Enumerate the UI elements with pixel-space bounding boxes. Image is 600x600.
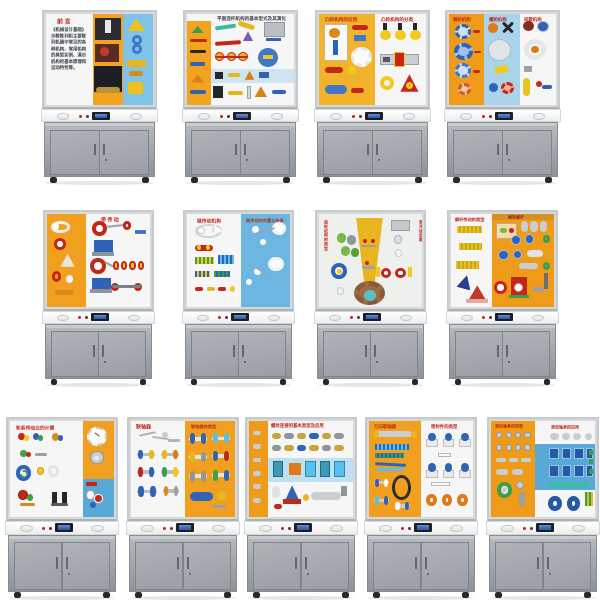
item-part — [201, 471, 206, 482]
speaker-grille-icon — [461, 315, 473, 322]
panel-title: 联轴器 — [136, 424, 151, 431]
wheel-icon — [51, 379, 58, 385]
board-item-rect — [574, 448, 583, 460]
control-button — [85, 316, 88, 319]
keyhole — [376, 361, 378, 363]
control-button — [489, 115, 492, 118]
control-button — [359, 115, 362, 118]
door-handle — [102, 345, 104, 356]
wheel-icon — [224, 592, 231, 598]
cabinet-door-left — [495, 542, 543, 590]
product-photo: 前 言《机械设计基础》示教陈列柜主要陈列机器中常见的各种机构、常用机构的典型实例… — [0, 0, 600, 600]
board-item-ring — [543, 262, 550, 269]
display-board: 万向联轴器密封件的类型 — [369, 421, 473, 517]
item-part — [224, 451, 229, 462]
board-item-circle — [341, 246, 350, 255]
display-case: 万向联轴器密封件的类型 — [365, 417, 477, 521]
item-part — [190, 452, 195, 463]
board-item-cap — [272, 90, 287, 95]
board-item-circle — [94, 494, 102, 503]
caster-wheels — [127, 591, 239, 598]
board-item-cap — [527, 250, 542, 256]
wheel-icon — [544, 379, 551, 385]
display-case: 蜗杆传动的类型蜗轮蜗杆 — [447, 210, 558, 311]
board-item-ring — [52, 271, 61, 281]
board-item-rect — [466, 299, 488, 303]
board-item-cap — [512, 469, 523, 475]
item-part — [445, 463, 453, 471]
board-item-gear — [20, 470, 27, 478]
display-cabinet-rolling-bearings: 滚动轴承的类型滚动轴承的应用 — [487, 417, 599, 598]
display-case: 螺纹连接的基本类型及应用 — [245, 417, 357, 521]
item-part — [461, 463, 469, 471]
display-case: 凸轮机构的应用凸轮机构的分类 — [315, 10, 430, 109]
door-handle — [305, 557, 307, 569]
lcd-screen-glass — [94, 315, 106, 319]
board-item-rect — [413, 23, 417, 29]
item-part — [173, 450, 178, 460]
board-item-circle — [217, 491, 225, 500]
cabinet-door-left — [323, 331, 371, 377]
board-item-circle — [246, 279, 252, 285]
lcd-screen — [363, 313, 381, 321]
wheel-icon — [191, 379, 198, 385]
item-part — [375, 496, 379, 505]
board-item-ring — [129, 261, 135, 269]
item-part — [138, 467, 143, 477]
keyhole — [549, 573, 551, 575]
board-item-cap — [519, 263, 538, 269]
control-button — [227, 115, 230, 118]
lcd-screen-glass — [368, 114, 381, 118]
board-item-cap — [190, 50, 206, 54]
panel-title: 渐开线齿廓 — [417, 220, 422, 242]
display-board: 凸轮机构的应用凸轮机构的分类 — [319, 14, 426, 105]
board-item-circle — [411, 431, 417, 439]
board-item-rect — [549, 448, 558, 460]
board-item-cap — [253, 471, 261, 476]
power-indicator-light — [218, 316, 221, 319]
display-cabinet-worm-drives: 蜗杆传动的类型蜗轮蜗杆 — [447, 210, 558, 385]
cabinet-door-left — [191, 130, 241, 176]
board-item-rect — [105, 20, 111, 33]
item-part — [190, 433, 195, 444]
board-item-circle — [337, 287, 344, 294]
wheel-icon — [191, 177, 198, 183]
board-item-cap — [96, 87, 120, 92]
speaker-grille-icon — [329, 315, 341, 322]
display-case: 棘轮机构槽轮机构间歇机构 — [445, 10, 560, 109]
board-item-stripes — [195, 271, 209, 277]
panel-title: 滚动轴承的类型 — [495, 424, 523, 430]
board-item-rect — [213, 86, 224, 98]
board-item-cap — [195, 287, 203, 291]
cabinet-body — [185, 122, 295, 176]
wheel-icon — [373, 592, 380, 598]
speaker-grille-icon — [198, 113, 210, 120]
board-item-gear — [87, 427, 107, 446]
item-part — [162, 467, 167, 477]
display-board: 联轴器联轴器的类型 — [131, 421, 235, 517]
item-part — [138, 486, 144, 497]
board-item-circle — [525, 234, 534, 243]
caster-wheels — [245, 591, 357, 598]
control-panel — [446, 311, 559, 324]
board-item-circle — [351, 248, 359, 256]
control-panel — [444, 109, 561, 122]
speaker-grille-icon — [330, 113, 342, 120]
power-indicator-light — [42, 527, 45, 530]
door-handle — [374, 345, 376, 356]
panel-title: 前 言 — [57, 18, 71, 27]
cabinet-door-left — [253, 542, 301, 590]
board-item-coupl — [162, 486, 180, 496]
board-item-ring — [395, 268, 405, 278]
board-item-cap — [550, 433, 558, 441]
display-board: 链传动机构链传动的布置与张紧 — [187, 214, 290, 307]
board-item-circle — [371, 239, 375, 243]
board-item-circle — [197, 227, 204, 234]
control-button — [49, 527, 52, 530]
cabinet-door-right — [62, 542, 110, 590]
board-item-cap — [216, 56, 248, 58]
door-handle — [537, 557, 539, 569]
board-item-mount — [426, 463, 437, 477]
panel-title: 滚动轴承的应用 — [551, 425, 579, 431]
board-item-cap — [213, 505, 225, 509]
board-item-cap — [542, 85, 552, 89]
board-item-cap — [297, 433, 306, 439]
display-cabinet-cam-mechanisms: 凸轮机构的应用凸轮机构的分类 — [315, 10, 430, 183]
cabinet-door-right — [372, 130, 422, 176]
item-part — [213, 451, 218, 462]
display-board: 蜗杆传动的类型蜗轮蜗杆 — [451, 214, 554, 307]
cabinet-door-right — [99, 130, 149, 176]
board-item-gear — [454, 43, 472, 59]
panel-title: 凸轮机构的应用 — [325, 17, 357, 24]
display-case: 链传动机构链传动的布置与张紧 — [183, 210, 294, 311]
board-item-coupl — [160, 467, 180, 477]
board-item-rect — [544, 273, 548, 289]
speaker-grille-icon — [268, 315, 280, 322]
panel-title: 轮系传动比的计算 — [16, 425, 54, 432]
board-item-stripes — [195, 257, 214, 264]
board-item-cap — [530, 221, 537, 231]
speaker-grille-icon — [57, 113, 69, 120]
door-handle — [506, 144, 508, 155]
door-handle — [94, 144, 96, 155]
board-item-cap — [168, 439, 179, 441]
keyhole — [307, 573, 309, 575]
board-item-rect — [333, 40, 338, 56]
caster-wheels — [42, 176, 157, 183]
lcd-screen-glass — [95, 114, 108, 118]
board-item-cap — [509, 458, 518, 463]
item-part — [428, 433, 436, 441]
display-case: 轮系传动比的计算 — [6, 417, 118, 521]
board-item-rect — [341, 486, 347, 496]
board-item-circle — [489, 83, 499, 92]
lcd-screen-glass — [498, 315, 510, 319]
keyhole — [104, 361, 106, 363]
board-item-cap — [297, 445, 306, 451]
power-indicator-light — [350, 316, 353, 319]
display-cabinet-planar-linkages: 平面连杆机构的基本型式及其演化 — [183, 10, 298, 183]
board-item-rect — [394, 52, 405, 68]
display-cabinet-gear-mechanisms: 齿轮机构的类型渐开线齿廓 — [315, 210, 426, 385]
board-item-gear — [455, 24, 471, 39]
item-part — [201, 433, 206, 444]
board-item-mount — [443, 433, 454, 447]
door-handle — [497, 144, 499, 155]
control-panel — [42, 311, 155, 324]
board-item-cap — [272, 445, 281, 451]
power-indicator-light — [352, 115, 355, 118]
display-cabinet-chain-drives: 链传动机构链传动的布置与张紧 — [183, 210, 294, 385]
board-item-rect — [128, 82, 143, 94]
item-part — [201, 452, 206, 463]
door-handle — [497, 345, 499, 356]
preface-body: 《机械设计基础》示教陈列柜主要陈列机器中常见的各种机构、常用机构的典型实例、演示… — [51, 27, 90, 72]
board-item-cap — [376, 431, 411, 438]
cabinet-door-right — [301, 542, 349, 590]
board-item-stripes — [375, 453, 404, 459]
control-button — [357, 316, 360, 319]
cabinet-door-right — [421, 542, 469, 590]
board-item-cap — [473, 30, 480, 33]
board-item-cap — [521, 458, 530, 463]
caster-wheels — [445, 176, 560, 183]
keyhole — [427, 573, 429, 575]
item-part — [224, 470, 229, 481]
board-item-cap — [362, 266, 374, 269]
speaker-grille-icon — [130, 113, 142, 120]
cabinet-body — [247, 535, 355, 592]
board-item-cap — [190, 492, 213, 501]
keyhole — [508, 361, 510, 363]
board-item-rect — [376, 267, 381, 277]
lcd-screen — [233, 112, 251, 120]
keyhole — [244, 361, 246, 363]
board-item-cap — [325, 67, 342, 72]
item-part — [405, 502, 409, 511]
lcd-screen-glass — [498, 114, 511, 118]
lcd-screen — [414, 523, 432, 532]
board-item-stripes — [457, 226, 482, 233]
board-item-ring — [494, 281, 506, 294]
board-item-cap — [190, 62, 205, 66]
wheel-icon — [50, 177, 57, 183]
cabinet-body — [44, 122, 154, 176]
cabinet-body — [489, 535, 597, 592]
board-item-cap — [129, 71, 143, 76]
speaker-grille-icon — [91, 525, 103, 532]
wheel-icon — [135, 592, 142, 598]
wheel-icon — [342, 592, 349, 598]
board-item-cap — [334, 445, 343, 451]
speaker-grille-icon — [460, 113, 472, 120]
board-item-mount — [426, 433, 437, 447]
lcd-screen — [55, 523, 73, 532]
speaker-grille-icon — [400, 315, 412, 322]
item-part — [224, 433, 229, 443]
speaker-grille-icon — [403, 113, 415, 120]
lcd-screen — [365, 112, 383, 120]
board-item-circle — [501, 487, 506, 493]
display-cabinet-universal-joints-seals: 万向联轴器密封件的类型 — [365, 417, 477, 598]
power-indicator-light — [78, 316, 81, 319]
speaker-grille-icon — [379, 525, 391, 532]
control-panel — [486, 521, 600, 535]
cabinet-body — [8, 535, 116, 592]
cabinet-door-left — [51, 331, 99, 377]
speaker-grille-icon — [128, 315, 140, 322]
display-case: 平面连杆机构的基本型式及其演化 — [183, 10, 298, 109]
door-handle — [242, 345, 244, 356]
lcd-screen-glass — [236, 114, 249, 118]
board-item-cap — [309, 445, 318, 451]
board-item-rect — [354, 35, 366, 40]
board-item-rect — [86, 482, 97, 487]
wheel-icon — [415, 177, 422, 183]
board-item-cap — [272, 486, 280, 498]
speaker-grille-icon — [57, 315, 69, 322]
board-item-cap — [519, 492, 525, 505]
board-item-circle — [37, 467, 44, 475]
display-board: 平面连杆机构的基本型式及其演化 — [187, 14, 294, 105]
power-indicator-light — [523, 527, 526, 530]
control-button — [489, 316, 492, 319]
board-item-cap — [322, 433, 331, 439]
lcd-screen-glass — [58, 525, 70, 530]
display-board: 滚动轴承的类型滚动轴承的应用 — [491, 421, 595, 517]
control-panel — [182, 311, 295, 324]
board-item-ring — [406, 82, 413, 89]
lcd-screen-glass — [417, 525, 429, 530]
board-item-ring — [138, 261, 144, 269]
board-item-rect — [90, 289, 112, 293]
board-item-coupl — [136, 486, 158, 497]
board-item-circle — [537, 21, 549, 32]
caster-wheels — [183, 176, 298, 183]
cabinet-door-left — [455, 331, 503, 377]
speaker-grille-icon — [141, 525, 153, 532]
control-button — [170, 527, 173, 530]
wheel-icon — [103, 592, 110, 598]
board-item-circle — [488, 39, 512, 61]
board-item-rect — [562, 448, 571, 460]
board-item-circle — [500, 228, 506, 234]
board-item-cap — [112, 285, 141, 287]
control-button — [530, 527, 533, 530]
door-handle — [365, 345, 367, 356]
board-item-rect — [549, 482, 589, 488]
board-item-coupl — [373, 479, 390, 488]
board-item-circle — [524, 444, 530, 451]
wheel-icon — [462, 592, 469, 598]
board-item-stripes — [218, 255, 234, 264]
board-item-rect — [92, 252, 114, 256]
caster-wheels — [447, 378, 558, 385]
lcd-screen — [231, 313, 249, 321]
keyhole — [105, 159, 107, 161]
wheel-icon — [323, 379, 330, 385]
board-item-ring — [426, 494, 436, 506]
board-item-rect — [283, 499, 301, 504]
power-indicator-light — [163, 527, 166, 530]
board-item-cap — [207, 287, 215, 291]
board-item-rect — [266, 38, 281, 42]
keyhole — [508, 159, 510, 161]
power-indicator-light — [220, 115, 223, 118]
board-item-cap — [284, 445, 293, 451]
cabinet-door-left — [50, 130, 100, 176]
caster-wheels — [43, 378, 154, 385]
item-part — [428, 463, 436, 471]
power-indicator-light — [281, 527, 284, 530]
board-item-circle — [329, 28, 341, 38]
display-board: 螺纹连接的基本类型及应用 — [249, 421, 353, 517]
item-part — [384, 496, 388, 505]
door-handle — [367, 144, 369, 155]
board-item-rect — [264, 22, 285, 37]
board-item-ring — [392, 475, 411, 500]
cabinet-door-right — [370, 331, 418, 377]
board-item-rect — [127, 60, 145, 67]
display-case: 联轴器联轴器的类型 — [127, 417, 239, 521]
board-item-coupl — [188, 433, 208, 444]
board-item-stripes — [375, 444, 408, 450]
display-board: 前 言《机械设计基础》示教陈列柜主要陈列机器中常见的各种机构、常用机构的典型实例… — [46, 14, 153, 105]
wheel-icon — [455, 379, 462, 385]
item-part — [162, 450, 167, 460]
board-item-coupl — [373, 496, 390, 505]
board-item-ring — [121, 261, 127, 269]
board-item-cap — [272, 433, 281, 439]
board-item-rect — [305, 461, 315, 476]
door-handle — [66, 557, 68, 569]
board-item-cap — [228, 73, 241, 77]
display-cabinet-intermittent-mechanisms: 棘轮机构槽轮机构间歇机构 — [445, 10, 560, 183]
board-item-coupl — [211, 470, 231, 481]
control-panel — [41, 109, 158, 122]
cabinet-door-left — [135, 542, 183, 590]
cabinet-body — [367, 535, 475, 592]
board-item-circle — [395, 249, 402, 256]
board-item-coupl — [394, 502, 411, 511]
board-item-coupl — [211, 433, 231, 443]
board-item-rect — [398, 23, 402, 29]
cabinet-body — [449, 324, 556, 379]
board-item-circle — [395, 30, 406, 40]
speaker-grille-icon — [259, 525, 271, 532]
display-cabinet-threaded-connections: 螺纹连接的基本类型及应用 — [245, 417, 357, 598]
wheel-icon — [584, 592, 591, 598]
wheel-icon — [495, 592, 502, 598]
panel-title: 螺纹连接的基本类型及应用 — [271, 423, 324, 429]
lcd-screen — [92, 112, 110, 120]
board-item-rect — [259, 72, 270, 78]
board-item-cap — [533, 287, 543, 292]
power-indicator-light — [79, 115, 82, 118]
door-handle — [376, 144, 378, 155]
cabinet-door-left — [453, 130, 503, 176]
keyhole — [246, 159, 248, 161]
board-item-rect — [273, 461, 283, 476]
cabinet-door-left — [14, 542, 62, 590]
wheel-icon — [14, 592, 21, 598]
speaker-grille-icon — [572, 525, 584, 532]
